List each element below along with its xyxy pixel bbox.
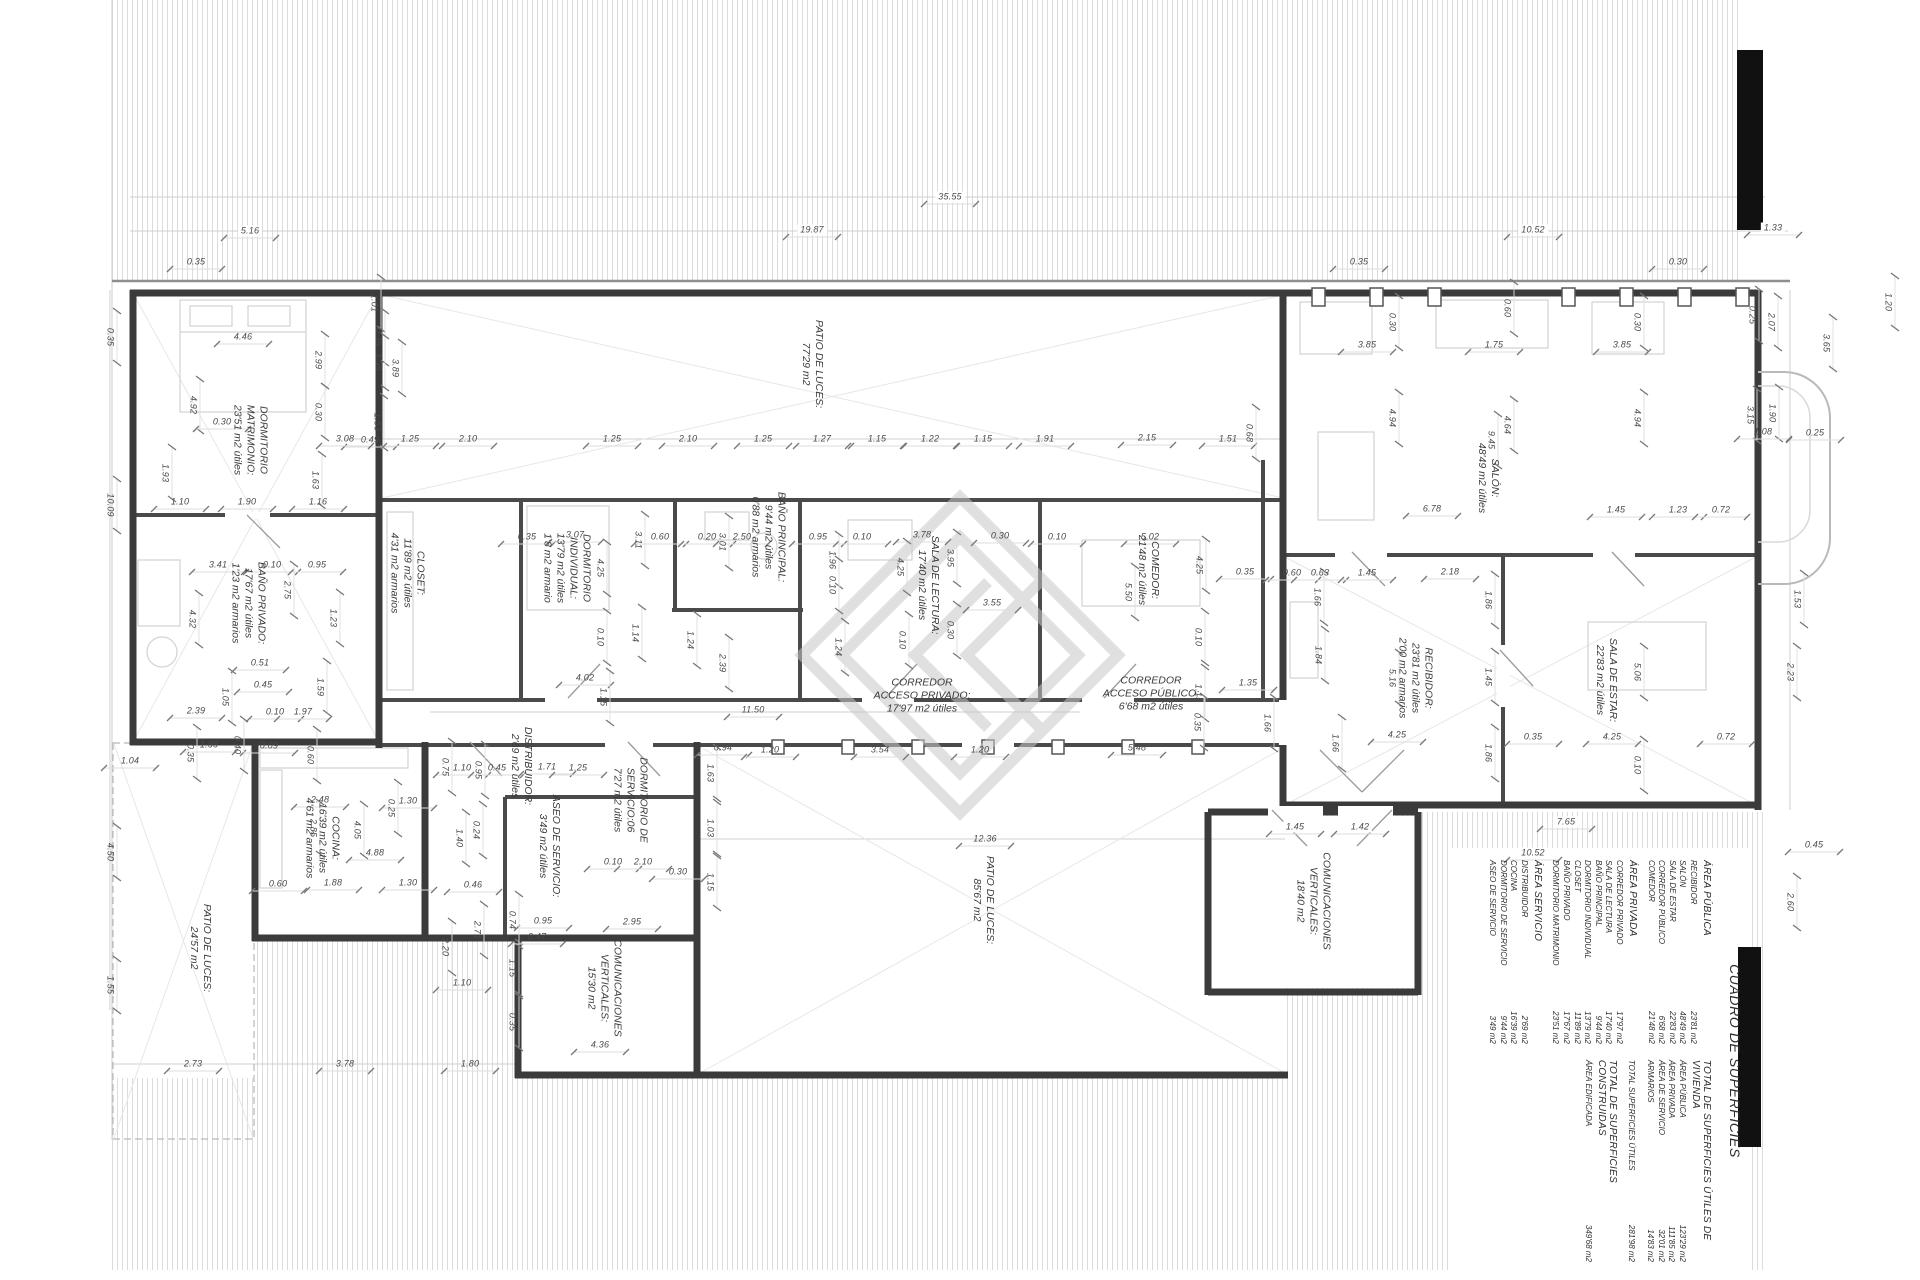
- dimension-label: 1.30: [399, 879, 417, 888]
- dimension-label: 0.10: [828, 576, 837, 594]
- dimension-label: 0.10: [1194, 628, 1203, 646]
- dimension-label: 1.10: [453, 764, 471, 773]
- dimension-label: 1.59: [316, 678, 325, 696]
- legend-row: BAÑO PRINCIPAL9'44 m2: [1592, 860, 1603, 1044]
- legend-row-name: ÁREA PÚBLICA: [1676, 1060, 1687, 1118]
- dimension-label: 2.39: [187, 707, 205, 716]
- dimension-label: 1.03: [706, 819, 715, 837]
- dimension-label: 1.24: [834, 638, 843, 656]
- dimension-label: 1.40: [455, 829, 464, 847]
- dimension-label: 1.80: [461, 1060, 479, 1069]
- dimension-label: 1.10: [453, 979, 471, 988]
- dimension-label: 3.15: [1746, 406, 1755, 424]
- dimension-label: 0.30: [314, 403, 323, 421]
- room-label: ASEO DE SERVICIO: 3'49 m2 útiles: [536, 795, 562, 898]
- dimension-label: 2.99: [314, 351, 323, 369]
- dimension-label: 1.15: [599, 688, 608, 706]
- dimension-label: 2.48: [311, 796, 329, 805]
- dimension-label: 7.65: [1554, 817, 1578, 828]
- dimension-label: 1.15: [868, 435, 886, 444]
- legend-row: DORMITORIO DE SERVICIO9'44 m2: [1497, 860, 1508, 1044]
- legend-row-name: ASEO DE SERVICIO: [1487, 860, 1498, 936]
- dimension-label: 4.94: [1633, 409, 1642, 427]
- legend-row-value: 23'51 m2: [1550, 1005, 1561, 1044]
- dimension-label: 3.78: [336, 1060, 354, 1069]
- dimension-label: 3.54: [871, 746, 889, 755]
- dimension-label: 1.08: [1754, 428, 1772, 437]
- legend-row-name: ARMARIOS: [1645, 1060, 1656, 1103]
- dimension-label: 0.25: [387, 799, 396, 817]
- room-label: DORMITORIO INDIVIDUAL: 13'79 m2 útiles 1…: [540, 533, 593, 603]
- dimension-label: 1.22: [921, 435, 939, 444]
- dimension-label: 1.01: [370, 294, 379, 312]
- dimension-label: 0.45: [1805, 841, 1823, 850]
- legend-group-header: ÁREA PRIVADA: [1627, 860, 1638, 1044]
- dimension-label: 2.15: [1138, 434, 1156, 443]
- legend-row: CORREDOR PÚBLICO6'68 m2: [1656, 860, 1667, 1044]
- legend-totals: TOTAL DE SUPERFICIES ÚTILES DE VIVIENDAÁ…: [1487, 1060, 1720, 1262]
- dimension-label: 3.01: [718, 533, 727, 551]
- dimension-label: 0.20: [698, 533, 716, 542]
- dimension-label: 3.85: [1613, 341, 1631, 350]
- dimension-label: 1.30: [399, 797, 417, 806]
- dimension-label: 3.07: [566, 531, 584, 540]
- legend-row: DISTRIBUIDOR2'69 m2: [1518, 860, 1529, 1044]
- legend-row-name: DORMITORIO DE SERVICIO: [1497, 860, 1508, 966]
- dimension-label: 0.68: [1245, 424, 1254, 442]
- dimension-label: 1.93: [161, 464, 170, 482]
- room-label: DORMITORIO DE SERVICIO:06 7'27 m2 útiles: [610, 757, 649, 843]
- legend-row-value: 123'29 m2: [1676, 1219, 1687, 1262]
- legend-row: TOTAL SUPERFICIES ÚTILES281'98 m2: [1625, 1060, 1636, 1262]
- dimension-label: 0.10: [1633, 756, 1642, 774]
- legend-row: COCINA16'39 m2: [1508, 860, 1519, 1044]
- legend-row-name: COMEDOR: [1645, 860, 1656, 902]
- dimension-label: 0.30: [213, 418, 231, 427]
- dimension-label: 1.25: [603, 435, 621, 444]
- legend-row-value: 48'49 m2: [1677, 1005, 1688, 1044]
- dimension-label: 1.45: [1358, 569, 1376, 578]
- dimension-label: 4.32: [188, 610, 197, 628]
- dimension-label: 0.10: [266, 708, 284, 717]
- legend-row-value: 23'81 m2: [1687, 1005, 1698, 1044]
- dimension-label: 0.72: [1712, 506, 1730, 515]
- dimension-label: 1.20: [761, 746, 779, 755]
- legend-row-name: SALÓN: [1677, 860, 1688, 887]
- dimension-label: 3.95: [946, 549, 955, 567]
- dimension-label: 1.14: [631, 624, 640, 642]
- legend-row: SALA DE ESTAR22'83 m2: [1666, 860, 1677, 1044]
- legend-row-value: 111'85 m2: [1666, 1220, 1677, 1262]
- dimension-label: 2.10: [679, 435, 697, 444]
- dimension-label: 0.74: [508, 911, 517, 929]
- legend-row-value: 17'97 m2: [1613, 1005, 1624, 1044]
- dimension-label: 1.45: [1484, 668, 1493, 686]
- dimension-label: 4.25: [896, 558, 905, 576]
- legend-row-value: 6'68 m2: [1656, 1010, 1667, 1044]
- legend-group-header: TOTAL DE SUPERFICIES ÚTILES DE VIVIENDA: [1690, 1060, 1712, 1262]
- legend-row-name: CLOSET: [1571, 860, 1582, 892]
- legend-row-value: 281'98 m2: [1625, 1219, 1636, 1262]
- legend-row-name: SALA DE LECTURA: [1603, 860, 1614, 933]
- dimension-label: 2.50: [733, 533, 751, 542]
- dimension-label: 2.07: [1767, 313, 1776, 331]
- legend-row-name: COCINA: [1508, 860, 1519, 891]
- surface-area-legend: CUADRO DE SUPERFICIES ÁREA PÚBLICARECIBI…: [1450, 852, 1745, 1270]
- dimension-label: 5.06: [1633, 663, 1642, 681]
- dimension-label: 0.10: [898, 631, 907, 649]
- dimension-label: 0.30: [991, 532, 1009, 541]
- dimension-label: 1.25: [569, 764, 587, 773]
- legend-row-name: ÁREA PRIVADA: [1666, 1060, 1677, 1118]
- dimension-label: 0.24: [472, 821, 481, 839]
- dimension-label: 4.25: [1603, 733, 1621, 742]
- legend-row: CORREDOR PRIVADO17'97 m2: [1613, 860, 1624, 1044]
- room-label: RECIBIDOR: 23'81 m2 útiles 2'00 m2 armar…: [1395, 638, 1434, 719]
- dimension-label: 0.35: [187, 258, 205, 267]
- dimension-label: 10.09: [106, 493, 115, 517]
- dimension-label: 1.90: [238, 498, 256, 507]
- dimension-label: 0.30: [669, 868, 687, 877]
- room-label: SALA DE LECTURA: 17'40 m2 útiles: [915, 536, 941, 635]
- dimension-label: 4.50: [106, 843, 115, 861]
- legend-row: ÁREA PRIVADA111'85 m2: [1666, 1060, 1677, 1262]
- dimension-label: 1.75: [1485, 341, 1503, 350]
- dimension-label: 1.84: [1314, 646, 1323, 664]
- dimension-label: 0.49: [361, 436, 379, 445]
- legend-row-name: DISTRIBUIDOR: [1518, 860, 1529, 917]
- dimension-label: 1.66: [1263, 714, 1272, 732]
- dimension-label: 0.35: [186, 744, 195, 762]
- dimension-label: 1.24: [686, 631, 695, 649]
- room-label: CORREDOR ACCESO PÚBLICO: 6'68 m2 útiles: [1103, 674, 1199, 713]
- dimension-label: 0.10: [263, 561, 281, 570]
- dimension-label: 1.27: [813, 435, 831, 444]
- dimension-label: 4.02: [576, 674, 594, 683]
- legend-row: ÁREA EDIFICADA349'68 m2: [1582, 1060, 1593, 1262]
- dimension-label: 1.97: [294, 708, 312, 717]
- dimension-label: 1.04: [121, 757, 139, 766]
- dimension-label: 4.25: [1388, 731, 1406, 740]
- dimension-label: 0.95: [308, 561, 326, 570]
- dimension-label: 19.87: [797, 225, 827, 236]
- legend-row: COMEDOR21'48 m2: [1645, 860, 1656, 1044]
- legend-row: DORMITORIO MATRIMONIO23'51 m2: [1550, 860, 1561, 1044]
- dimension-label: 1.90: [1768, 404, 1777, 422]
- legend-row: BAÑO PRIVADO17'67 m2: [1560, 860, 1571, 1044]
- dimension-label: 1.33: [1761, 223, 1785, 234]
- dimension-label: 0.72: [1717, 733, 1735, 742]
- dimension-label: 0.10: [1048, 533, 1066, 542]
- dimension-label: 0.35: [1524, 733, 1542, 742]
- dimension-label: 1.66: [1313, 588, 1322, 606]
- dimension-label: 0.25: [1806, 429, 1824, 438]
- dimension-label: 4.64: [1503, 416, 1512, 434]
- dimension-label: 5.48: [1128, 744, 1146, 753]
- dimension-label: 2.71: [473, 921, 482, 939]
- dimension-label: 1.15: [706, 873, 715, 891]
- room-label: PATIO DE LUCES: 77'29 m2: [799, 320, 825, 408]
- dimension-label: 0.60: [1503, 299, 1512, 317]
- dimension-label: 3.65: [1822, 334, 1831, 352]
- dimension-label: 35.55: [935, 192, 965, 203]
- dimension-label: 1.86: [1484, 591, 1493, 609]
- legend-row: ÁREA PÚBLICA123'29 m2: [1676, 1060, 1687, 1262]
- legend-group-header: TOTAL DE SUPERFICIES CONSTRUIDAS: [1596, 1060, 1618, 1262]
- dimension-label: 0.30: [1633, 313, 1642, 331]
- dimension-label: 0.45: [488, 764, 506, 773]
- legend-group-header: ÁREA SERVICIO: [1532, 860, 1543, 1044]
- dimension-label: 5.50: [1124, 583, 1133, 601]
- dimension-label: 0.60: [1283, 569, 1301, 578]
- legend-row-value: 32'01 m2: [1655, 1223, 1666, 1262]
- dimension-label: 1.45: [1607, 506, 1625, 515]
- dimension-label: 0.95: [534, 917, 552, 926]
- dimension-label: 0.95: [474, 761, 483, 779]
- dimension-label: 0.60: [651, 533, 669, 542]
- dimension-label: 2.10: [634, 858, 652, 867]
- legend-row-name: RECIBIDOR: [1687, 860, 1698, 904]
- dimension-label: 1.15: [1194, 684, 1203, 702]
- dimension-label: 2.10: [459, 435, 477, 444]
- dimension-label: 3.08: [336, 435, 354, 444]
- dimension-label: 1.10: [171, 498, 189, 507]
- dimension-label: 1.23: [329, 609, 338, 627]
- dimension-label: 4.92: [189, 396, 198, 414]
- dimension-label: 11.50: [742, 706, 765, 715]
- legend-row-value: 22'83 m2: [1666, 1005, 1677, 1044]
- legend-row-value: 9'44 m2: [1592, 1010, 1603, 1044]
- dimension-label: 0.75: [441, 758, 450, 776]
- legend-row-value: 17'67 m2: [1560, 1005, 1571, 1044]
- dimension-label: 4.46: [234, 333, 252, 342]
- dimension-label: 1.88: [324, 879, 342, 888]
- dimension-label: 1.23: [1669, 506, 1687, 515]
- dimension-label: 2.85: [309, 819, 318, 837]
- dimension-label: 1.25: [401, 435, 419, 444]
- legend-row-name: BAÑO PRIVADO: [1560, 860, 1571, 920]
- dimension-label: 0.35: [1236, 568, 1254, 577]
- legend-row-value: 2'69 m2: [1518, 1010, 1529, 1044]
- dimension-label: 3.55: [983, 599, 1001, 608]
- dimension-label: 0.30: [1669, 258, 1687, 267]
- legend-row: DORMITORIO INDIVIDUAL13'79 m2: [1582, 860, 1593, 1044]
- dimension-label: 0.94: [714, 744, 732, 753]
- room-label: DISTRIBUIDOR: 2'69 m2 útiles: [508, 727, 534, 805]
- dimension-label: 4.25: [596, 559, 605, 577]
- dimension-label: 1.63: [311, 471, 320, 489]
- legend-row-value: 349'68 m2: [1582, 1219, 1593, 1262]
- dimension-label: 2.95: [623, 918, 641, 927]
- dimension-label: 0.25: [1748, 306, 1757, 324]
- dimension-label: 1.42: [1348, 822, 1372, 833]
- dimension-label: 2.20: [441, 938, 450, 956]
- legend-row: ARMARIOS14'83 m2: [1645, 1060, 1656, 1262]
- room-label: COMUNICACIONES VERTICALES: 15'30 m2: [584, 939, 623, 1036]
- legend-row-name: DORMITORIO MATRIMONIO: [1550, 860, 1561, 965]
- dimension-label: 0.51: [251, 659, 269, 668]
- dimension-label: 2.75: [283, 581, 292, 599]
- dimension-label: 0.10: [596, 628, 605, 646]
- dimension-label: 1.51: [1219, 435, 1237, 444]
- dimension-label: 4.88: [366, 849, 384, 858]
- dimension-label: 4.05: [353, 821, 362, 839]
- dimension-label: 4.36: [591, 1041, 609, 1050]
- legend-row-value: 11'89 m2: [1571, 1006, 1582, 1044]
- dimension-label: 0.10: [853, 533, 871, 542]
- dimension-label: 0.60: [269, 880, 287, 889]
- dimension-label: 0.46: [464, 881, 482, 890]
- dimension-label: 0.47: [528, 933, 546, 942]
- dimension-label: 3.89: [391, 359, 400, 377]
- legend-row-name: ÁREA DE SERVICIO: [1655, 1060, 1666, 1135]
- dimension-label: 1.20: [971, 746, 989, 755]
- dimension-label: 0.35: [1193, 713, 1202, 731]
- dimension-label: 1.63: [706, 764, 715, 782]
- dimension-label: 1.15: [974, 435, 992, 444]
- legend-row: RECIBIDOR23'81 m2: [1687, 860, 1698, 1044]
- dimension-label: 3.11: [634, 531, 643, 549]
- dimension-label: 4.94: [1388, 409, 1397, 427]
- dimension-label: 3.78: [913, 531, 931, 540]
- legend-row: ÁREA DE SERVICIO32'01 m2: [1655, 1060, 1666, 1262]
- dimension-label: 0.35: [518, 533, 536, 542]
- room-label: SALA DE ESTAR: 22'83 m2 útiles: [1593, 638, 1619, 722]
- dimension-label: 0.95: [809, 533, 827, 542]
- dimension-label: 1.35: [1239, 679, 1257, 688]
- floor-plan-canvas: DORMITORIO MATRIMONIO: 23'51 m2 útilesBA…: [0, 0, 1920, 1280]
- dimension-label: 1.91: [1036, 435, 1054, 444]
- dimension-label: 1.25: [754, 435, 772, 444]
- dimension-label: 0.10: [604, 858, 622, 867]
- dimension-label: 6.78: [1423, 505, 1441, 514]
- legend-row-value: 14'83 m2: [1645, 1223, 1656, 1262]
- room-label: COMEDOR: 21'48 m2 útiles: [1135, 535, 1161, 605]
- legend-title: CUADRO DE SUPERFICIES: [1727, 852, 1743, 1270]
- dimension-label: 2.23: [1786, 663, 1795, 681]
- dimension-label: 1.20: [1884, 293, 1893, 311]
- dimension-label: 0.45: [254, 681, 272, 690]
- dimension-label: 0.09: [260, 742, 278, 751]
- dimension-label: 1.35: [374, 353, 383, 371]
- legend-row-value: 17'40 m2: [1603, 1005, 1614, 1044]
- dimension-label: 0.35: [106, 328, 115, 346]
- dimension-label: 0.30: [946, 621, 955, 639]
- legend-row-name: ÁREA EDIFICADA: [1582, 1060, 1593, 1126]
- legend-row-value: 16'39 m2: [1508, 1005, 1519, 1044]
- dimension-label: 1.16: [309, 498, 327, 507]
- legend-row-name: BAÑO PRINCIPAL: [1592, 860, 1603, 927]
- legend-group-header: ÁREA PÚBLICA: [1701, 860, 1712, 1044]
- legend-row: CLOSET11'89 m2: [1571, 860, 1582, 1044]
- room-label: BAÑO PRIVADO: 17'67 m2 útiles 1'23 m2 ar…: [228, 562, 267, 644]
- dimension-label: 0.35: [374, 328, 383, 346]
- dimension-label: 1.86: [1484, 744, 1493, 762]
- dimension-label: 0.35: [1350, 258, 1368, 267]
- legend-row-value: 3'49 m2: [1487, 1010, 1498, 1044]
- legend-row-name: DORMITORIO INDIVIDUAL: [1582, 860, 1593, 959]
- legend-row-value: 21'48 m2: [1645, 1005, 1656, 1044]
- dimension-label: 0.30: [1388, 313, 1397, 331]
- legend-row-value: 13'79 m2: [1582, 1005, 1593, 1044]
- dimension-label: 12.36: [973, 835, 997, 844]
- room-label: CLOSET: 11'89 m2 útiles 4'31 m2 armarios: [387, 533, 426, 614]
- legend-area-groups: ÁREA PÚBLICARECIBIDOR23'81 m2SALÓN48'49 …: [1487, 860, 1720, 1044]
- dimension-label: 2.60: [1786, 893, 1795, 911]
- room-label: COMUNICACIONES VERTICALES: 18'40 m2: [1293, 852, 1332, 949]
- room-label: DORMITORIO MATRIMONIO: 23'51 m2 útiles: [230, 405, 269, 475]
- dimension-label: 9.45: [1487, 431, 1496, 449]
- dimension-label: 1.66: [1331, 734, 1340, 752]
- dimension-label: 1.96: [828, 551, 837, 569]
- dimension-label: 1.71: [538, 763, 556, 772]
- dimension-label: 1.53: [1793, 590, 1802, 608]
- dimension-label: 5.16: [238, 226, 262, 237]
- legend-row-name: TOTAL SUPERFICIES ÚTILES: [1625, 1060, 1636, 1171]
- dimension-label: 1.05: [221, 688, 230, 706]
- dimension-label: 1.55: [106, 976, 115, 994]
- dimension-label: 0.63: [1311, 569, 1329, 578]
- dimension-label: 5.16: [1388, 669, 1397, 687]
- dimension-label: 3.85: [1358, 341, 1376, 350]
- legend-row: ASEO DE SERVICIO3'49 m2: [1487, 860, 1498, 1044]
- dimension-label: 1.53: [373, 413, 382, 431]
- dimension-label: 10.52: [1518, 225, 1548, 236]
- legend-row-name: SALA DE ESTAR: [1666, 860, 1677, 922]
- dimension-label: 1.60: [200, 741, 218, 750]
- dimension-label: 4.25: [1195, 556, 1204, 574]
- legend-row-name: CORREDOR PRIVADO: [1613, 860, 1624, 944]
- legend-row-value: 9'44 m2: [1497, 1010, 1508, 1044]
- legend-row: SALA DE LECTURA17'40 m2: [1603, 860, 1614, 1044]
- dimension-label: 2.39: [718, 654, 727, 672]
- room-label: BAÑO PRINCIPAL: 9'44 m2 útiles 0'88 m2 a…: [748, 492, 787, 582]
- dimension-label: 0.35: [508, 1013, 517, 1031]
- legend-row: SALÓN48'49 m2: [1677, 860, 1688, 1044]
- room-label: COCINA: 16'39 m2 útiles 4'61 m2 armarios: [302, 798, 341, 879]
- room-label: SALÓN: 48'49 m2 útiles: [1475, 443, 1501, 513]
- dimension-label: 5.02: [1141, 533, 1159, 542]
- dimension-label: 2.18: [1441, 568, 1459, 577]
- dimension-label: 0.60: [306, 746, 315, 764]
- legend-row-name: CORREDOR PÚBLICO: [1656, 860, 1667, 944]
- room-label: PATIO DE LUCES: 85'67 m2: [970, 856, 996, 944]
- dimension-label: 1.15: [508, 959, 517, 977]
- dimension-label: 3.41: [209, 561, 227, 570]
- room-label: PATIO DE LUCES: 24'57 m2: [187, 904, 213, 992]
- dimension-label: 1.45: [1283, 822, 1307, 833]
- room-label: CORREDOR ACCESO PRIVADO: 17'97 m2 útiles: [874, 676, 971, 715]
- dimension-label: 0.40: [233, 736, 242, 754]
- dimension-label: 2.73: [184, 1060, 202, 1069]
